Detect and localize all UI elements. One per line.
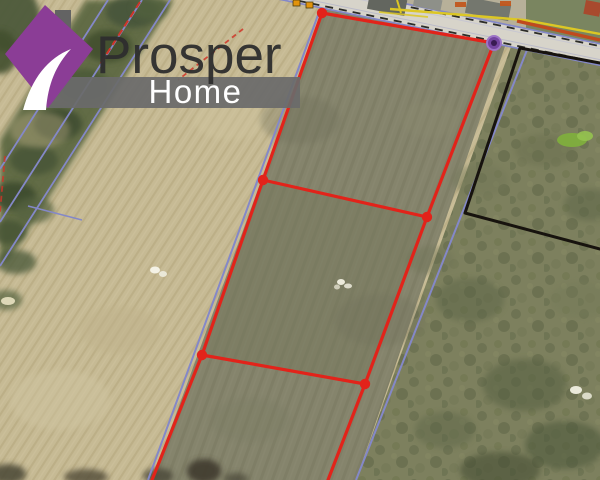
terrain-spot xyxy=(570,386,582,394)
terrain-spot xyxy=(58,69,110,103)
terrain-spot xyxy=(577,131,593,141)
listed-parcel-red-vertex-dot xyxy=(360,379,370,389)
terrain-spot xyxy=(159,271,167,277)
map-canvas xyxy=(0,0,600,480)
boundary-point-marker-core xyxy=(491,40,497,46)
terrain-spot xyxy=(80,306,160,354)
listed-parcel-red-vertex-dot xyxy=(197,350,207,360)
terrain-spot xyxy=(415,412,475,448)
address-label xyxy=(500,1,511,6)
terrain-spot xyxy=(84,30,132,62)
address-label xyxy=(455,2,466,7)
terrain-spot xyxy=(483,359,567,411)
terrain-spot xyxy=(582,393,592,400)
terrain-spot xyxy=(10,112,70,148)
road-marker xyxy=(293,0,300,6)
terrain-spot xyxy=(1,297,15,305)
terrain-spot xyxy=(400,102,460,138)
terrain-spot xyxy=(337,279,345,285)
listed-parcel-red-vertex-dot xyxy=(258,175,268,185)
terrain-spot xyxy=(436,278,504,322)
terrain-spot xyxy=(150,267,160,274)
terrain-spot xyxy=(210,398,290,442)
terrain-spot xyxy=(334,285,340,290)
listed-parcel-red-vertex-dot xyxy=(317,8,327,18)
terrain-spot xyxy=(260,96,340,144)
road-marker xyxy=(306,2,313,8)
listed-parcel-red-vertex-dot xyxy=(422,212,432,222)
aerial-parcel-map: Prosper Home xyxy=(0,0,600,480)
terrain-spot xyxy=(10,370,110,430)
terrain-spot xyxy=(14,197,54,223)
terrain-spot xyxy=(194,100,266,140)
terrain-spot xyxy=(344,284,352,289)
